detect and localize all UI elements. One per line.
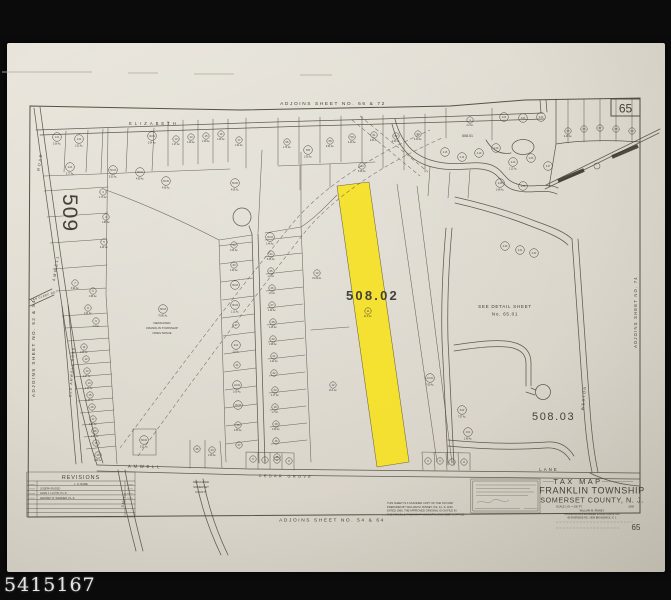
adjoins-right-label: ADJOINS SHEET NO. 74 (633, 276, 638, 348)
lot-number: 21 (273, 354, 276, 358)
lot-acreage: 1.12 Ac. (85, 387, 94, 390)
street-smith-label: SMITH (120, 492, 127, 508)
lot-marker: 2.19 (475, 149, 484, 158)
lot-number: 17 (92, 417, 95, 421)
tax-map-svg: 1.012.06 Ac.1.021.52 Ac.2.013.77 Ac.50.0… (0, 0, 671, 600)
lot-marker: 8 (461, 459, 467, 465)
lot-marker: 3.011.99 Ac. (464, 428, 473, 441)
lot-marker: 68.022.02 Ac. (140, 436, 149, 449)
street-elizabeth-label: ELIZABETH (129, 121, 179, 126)
lot-number: 28 (272, 320, 275, 324)
lot-number: 34 (233, 263, 236, 267)
lot-number: 9.01 (234, 345, 239, 347)
open-space-note-1: DEDICATED (153, 321, 171, 325)
lot-acreage: 1.99 Ac. (464, 437, 473, 440)
lot-number: 11 (367, 309, 370, 313)
lot-acreage: 1.0 Ac. (268, 292, 275, 295)
lot-acreage: 1.46 Ac. (266, 242, 275, 245)
adjoins-top-label: ADJOINS SHEET NO. 66 & 72 (280, 101, 386, 107)
lot-marker: 501.04 Ac. (230, 242, 239, 252)
lot-marker: 2.32 (530, 249, 539, 258)
lot-acreage: 1.29 Ac. (202, 140, 211, 143)
revision-row-1: L. G. RAME (74, 482, 88, 486)
lot-acreage: 1.04 Ac. (230, 249, 239, 252)
lot-acreage: 0.46 Ac. (267, 258, 276, 261)
lot-number: 15 (89, 393, 92, 397)
lot-marker: 9.011.0 Ac. (232, 341, 241, 354)
lot-acreage: 1.7 Ac. (271, 411, 278, 414)
lot-number: 58 (329, 139, 332, 143)
street-cedar-grove-label: CEDAR GROVE (259, 474, 314, 479)
lot-acreage: 2.17 Ac. (271, 394, 280, 397)
lot-marker: 52.24 Ac. (100, 239, 109, 249)
revision-row-3: GLEN J. LLOYD, P.L.S. (40, 491, 67, 495)
lot-marker: 45 (194, 446, 200, 452)
lot-number: 47 (238, 443, 241, 447)
lot-number: 15 (205, 134, 208, 138)
lot-marker: 35.03 (231, 281, 240, 290)
lot-marker: 441.53 Ac. (208, 447, 217, 457)
lot-number: 14 (190, 135, 193, 139)
lot-number: 25 (270, 269, 273, 273)
lot-number: 27 (271, 303, 274, 307)
lot-marker: 2.27 (544, 162, 553, 171)
lot-number: 1.01 (55, 137, 60, 139)
title-year: 1966 (628, 505, 634, 509)
lot-number: 35.03 (232, 285, 238, 287)
lot-acreage: 7.00 Ac. (426, 383, 435, 386)
lot-acreage: 2.61 Ac. (370, 139, 379, 142)
lot-number: 2.15 (443, 152, 448, 154)
lot-number: 62 (395, 134, 398, 138)
lot-number: 24 (270, 252, 273, 256)
paper-faint-dashes (2, 72, 332, 75)
lot-number: 2.19 (477, 153, 482, 155)
lot-acreage: 2.63 Ac. (392, 140, 401, 143)
map-border (28, 98, 640, 517)
lot-number: 2.31 (518, 250, 523, 252)
lot-number: 66 (583, 127, 586, 131)
lot-acreage: 4.09 Ac. (231, 188, 240, 191)
lot-number: 30.01 (149, 136, 155, 138)
lot-number: 50.06 (232, 183, 238, 185)
lot-number: 12 (85, 357, 88, 361)
sheet-number-bottom-label: 65 (632, 523, 641, 532)
street-lane-label: LANE (539, 467, 558, 472)
lot-number: 2.28 (498, 183, 503, 185)
lot-number: 16 (220, 132, 223, 136)
lot-marker: 171.24 Ac. (235, 137, 244, 147)
lot-marker: 170.80 Ac. (89, 416, 98, 426)
adjoins-bottom-label: ADJOINS SHEET NO. 54 & 64 (279, 518, 385, 524)
lot-acreage: 1.32 Ac. (230, 269, 239, 272)
lot-number: 43.02 (234, 385, 240, 387)
lot-acreage: 4.99 Ac. (136, 177, 145, 180)
lot-number: 50.04 (137, 172, 143, 174)
lot-marker: 3.027.57 Ac. (458, 406, 467, 419)
lot-marker: 50.064.09 Ac. (231, 179, 240, 192)
lot-marker: 561.74 Ac. (283, 139, 292, 149)
lot-number: 2.04 (502, 117, 507, 119)
lot-marker: 643.08 Ac. (358, 163, 367, 173)
lot-acreage: 1.89 Ac. (102, 221, 111, 224)
lot-number: 2.03 (521, 118, 526, 120)
lot-number: 19 (95, 441, 98, 445)
lot-marker: 2.013.77 Ac. (66, 163, 75, 176)
lot-marker: 47 (236, 442, 242, 448)
lot-number: 61 (373, 133, 376, 137)
lot-acreage: 1.04 Ac. (84, 312, 93, 315)
lot-marker: 41.89 Ac. (102, 214, 111, 224)
lot-marker: 70.92 Ac. (71, 280, 80, 290)
certification-stamp-box (471, 479, 540, 513)
street-weston-label: WESTON (581, 385, 588, 410)
open-space-note-2: FRANKLIN TOWNSHIP (146, 326, 178, 330)
lot-acreage: 2.06 Ac. (53, 142, 62, 145)
lot-number: 11 (83, 345, 86, 349)
lot-acreage: 3.08 Ac. (358, 170, 367, 173)
lot-acreage: 1.73 Ac. (99, 196, 108, 199)
lot-marker: 2.231.12 Ac. (509, 158, 518, 171)
see-detail-line2: No. 65.01 (492, 312, 518, 317)
lot-marker: 2.25 (527, 154, 536, 163)
lot-marker: 592.40 Ac. (348, 134, 357, 144)
lot-marker: 50.035.53 Ac. (109, 166, 118, 179)
lot-marker: 1015.29 Ac. (312, 270, 322, 280)
lot-marker: 582.61 Ac. (326, 138, 335, 148)
lot-number: 37 (235, 323, 238, 327)
lot-marker: 12 (83, 356, 89, 362)
lot-number: 2.20 (494, 148, 499, 150)
lot-marker: 141.29 Ac. (187, 134, 196, 144)
scan-note-1: THIS SHEET IS A SCANNED COPY OF THE TAX … (387, 501, 454, 505)
lot-number: 18 (94, 429, 97, 433)
lot-acreage: 75.80 Ac. (158, 314, 168, 317)
lot-acreage: 2.40 Ac. (348, 141, 357, 144)
highlighted-parcel-508-02-lot-11 (337, 182, 409, 467)
county-note-1: DEDICATED (193, 480, 209, 484)
lot-number: 18 (275, 422, 278, 426)
lot-number: 65 (567, 129, 570, 133)
lot-acreage: 3.77 Ac. (66, 172, 75, 175)
lot-marker: 16 (89, 404, 95, 410)
lot-marker: 191.7 Ac. (271, 404, 278, 414)
lot-acreage: 15.29 Ac. (312, 277, 322, 280)
lot-marker: 5 (250, 456, 256, 462)
lot-acreage: 7.57 Ac. (458, 415, 467, 418)
lot-marker: 1216.4 Ac. (329, 382, 338, 392)
lot-number: 69 (631, 129, 634, 133)
lot-marker: 111.06 Ac. (80, 344, 89, 354)
lot-marker: 92.3 Ac. (92, 318, 99, 328)
lot-marker: 50.054.08 Ac. (162, 177, 171, 190)
lot-acreage: 1.24 Ac. (94, 459, 103, 462)
railroad-symbol (545, 129, 660, 189)
lot-number: 3.01 (466, 432, 471, 434)
block-509-label: 509 (58, 194, 81, 232)
street-old-amwell-label: OLD AMWELL ROAD (68, 347, 76, 398)
lot-acreage: 5.53 Ac. (109, 175, 118, 178)
lot-number: 6 (439, 459, 441, 463)
lot-number: 45 (196, 447, 199, 451)
street-amwell-bottom-label: AMWELL (128, 464, 162, 470)
lot-number: 26 (271, 286, 274, 290)
lot-number: 46 (237, 423, 240, 427)
lot-number: 8 (288, 459, 290, 463)
lot-number: 10 (316, 271, 319, 275)
lot-acreage: 2.02 Ac. (140, 445, 149, 448)
lot-acreage: 1.00 Ac. (272, 428, 281, 431)
signature-squiggle (477, 499, 509, 503)
lot-marker: 1.021.52 Ac. (75, 135, 84, 148)
lot-acreage: 2.04 Ac. (148, 141, 157, 144)
lot-number: 22 (273, 371, 276, 375)
lot-number: 63 (417, 132, 420, 136)
lot-marker: 2.281.08 Ac. (496, 179, 505, 192)
lot-acreage: 1.24 Ac. (235, 144, 244, 147)
lot-number: 1.02 (77, 139, 82, 141)
lot-acreage: 1.22 Ac. (270, 360, 279, 363)
lot-marker: 6 (437, 458, 443, 464)
lot-acreage: 1.06 Ac. (80, 351, 89, 354)
lot-number: 2.32 (532, 253, 537, 255)
lot-number: 36.03 (232, 305, 238, 307)
lot-number: 2.14 (460, 157, 465, 159)
lot-number: 10.02 (427, 378, 433, 380)
lot-marker: 2.02 (537, 113, 546, 122)
lot-marker: 161.29 Ac. (217, 131, 226, 141)
lot-marker: 30.012.04 Ac. (148, 132, 157, 145)
lot-number: 8 (463, 460, 465, 464)
lot-acreage: 1.29 Ac. (217, 138, 226, 141)
lot-acreage: 21.9 Ac. (364, 315, 373, 318)
block-508-02-label: 508.02 (346, 288, 399, 303)
lot-acreage: 1.09 Ac. (233, 390, 242, 393)
lot-marker: 251.0 Ac. (267, 268, 274, 278)
lot-number: 3.02 (460, 410, 465, 412)
lot-acreage: 1.0 Ac. (267, 275, 274, 278)
lot-number: 29 (272, 337, 275, 341)
lot-marker: 12.2 Ac. (466, 117, 473, 127)
lot-acreage: 1.53 Ac. (208, 454, 217, 457)
scan-note-3: DATED 1966. THE APPROVED ORIGINAL IS ON … (387, 509, 456, 513)
lot-number: 50.03 (110, 170, 116, 172)
lot-marker: 151.29 Ac. (202, 133, 211, 143)
lot-number: 2.23 (511, 162, 516, 164)
revision-date-rows (556, 522, 634, 528)
revisions-title: REVISIONS (62, 475, 100, 481)
lot-marker: 622.63 Ac. (392, 133, 401, 143)
lot-number: 13 (175, 137, 178, 141)
lot-marker: 81.04 Ac. (84, 305, 93, 315)
open-space-note-3: OPEN SPACE (152, 331, 171, 335)
lot-acreage: 1.09 Ac. (304, 155, 313, 158)
lot-acreage: 1.30 Ac. (86, 399, 95, 402)
lot-number: 16 (275, 439, 278, 443)
street-van-cleef-label: VAN CLEEF RD. (30, 290, 58, 302)
lot-number: 67 (599, 126, 602, 130)
lot-number: 7 (451, 460, 453, 464)
lot-marker: 151.30 Ac. (86, 392, 95, 402)
lot-acreage: 4.08 Ac. (162, 186, 171, 189)
lot-marker: 2.30 (501, 242, 510, 251)
lot-marker: 131.27 Ac. (172, 136, 181, 146)
county-note-2: SOMERSET (193, 485, 209, 489)
title-scale: SCALE 1 IN. = 200 FT. (556, 505, 583, 509)
lot-number: 6 (92, 289, 94, 293)
lot-marker: 41 (234, 362, 240, 368)
lot-number: 5 (427, 459, 429, 463)
lot-number: 3 (102, 190, 104, 194)
lot-marker: 61.98 Ac. (89, 288, 98, 298)
lot-marker: 2.03 (519, 114, 528, 123)
street-amwell-road-lower-label: AMWELL (52, 254, 60, 281)
lot-number: 2.25 (529, 158, 534, 160)
lot-acreage: 1.74 Ac. (283, 146, 292, 149)
lot-acreage: 1.29 Ac. (187, 141, 196, 144)
lot-acreage: 1.12 Ac. (231, 310, 240, 313)
lot-number: 2.30 (503, 246, 508, 248)
lot-acreage: 1.0 Ac. (232, 350, 239, 353)
lot-number: 5 (252, 457, 254, 461)
lot-acreage: 1.27 Ac. (172, 143, 181, 146)
block-508-01-label: 508.01 (462, 134, 473, 138)
lot-number: 9 (95, 319, 97, 323)
lot-acreage: 0.92 Ac. (71, 287, 80, 290)
lot-number: 41 (236, 363, 239, 367)
lot-acreage: 1.68 Ac. (269, 343, 278, 346)
lot-number: 2.01 (68, 167, 73, 169)
scan-note-4: THE FRANKLIN TOWNSHIP MUNICIPAL ENGINEER… (387, 512, 465, 516)
lot-marker: 36.031.12 Ac. (231, 301, 240, 314)
lot-acreage: 1.98 Ac. (89, 295, 98, 298)
lot-number: 12 (332, 383, 335, 387)
lot-number: 17 (238, 138, 241, 142)
lot-acreage: 1.12 Ac. (509, 167, 518, 170)
lot-number: 13 (86, 369, 89, 373)
lot-acreage: 2.40 Ac. (564, 135, 573, 138)
lot-marker: 10.027.00 Ac. (426, 374, 435, 387)
lot-acreage: 1.46 Ac. (269, 326, 278, 329)
title-surveyor-3: 45 RIVERSIDE RD., NEW BRUNSWICK, N. J. (567, 516, 617, 519)
lot-number: 68.02 (141, 440, 147, 442)
lot-number: 2.02 (539, 117, 544, 119)
lot-marker: 43.021.09 Ac. (233, 381, 242, 394)
lot-number: 30.03 (267, 237, 273, 239)
block-508-03-label: 508.03 (532, 411, 575, 423)
lot-marker: 181.14 Ac. (91, 428, 100, 438)
lot-number: 7 (74, 281, 76, 285)
lot-number: 68.03 (160, 309, 166, 311)
lot-marker: 261.0 Ac. (268, 285, 275, 295)
lot-marker: 2.14 (458, 153, 467, 162)
sheet-number-box-label: 65 (619, 102, 633, 116)
lot-number: 23 (274, 388, 277, 392)
lot-number: 8 (87, 306, 89, 310)
lot-marker: 461.53 Ac. (234, 422, 243, 432)
revision-row-2: JOSEPH RUSSO (40, 487, 60, 491)
lot-number: 57B (306, 150, 311, 152)
lot-acreage: 1.32 Ac. (268, 309, 277, 312)
lot-number: 50.05 (163, 181, 169, 183)
lot-number: 2.27 (546, 166, 551, 168)
lot-marker: 7 (449, 459, 455, 465)
lot-acreage: 1.52 Ac. (75, 144, 84, 147)
lot-marker: 141.12 Ac. (85, 380, 94, 390)
lot-number: 5 (103, 240, 105, 244)
lot-number: 50 (233, 243, 236, 247)
lot-number: 59 (351, 135, 354, 139)
tax-map-photo-screenshot: 1.012.06 Ac.1.021.52 Ac.2.013.77 Ac.50.0… (0, 0, 671, 600)
lot-marker: 612.61 Ac. (370, 132, 379, 142)
lot-acreage: 2.2 Ac. (466, 124, 473, 127)
lot-acreage: 0.80 Ac. (89, 423, 98, 426)
lot-number: 56 (286, 140, 289, 144)
lot-acreage: 1.14 Ac. (91, 435, 100, 438)
lot-marker: 2.31 (516, 246, 525, 255)
watermark-number: 5415167 (4, 574, 96, 596)
revision-row-4: JEFFREY R. WARNER, P.L.S. (40, 496, 75, 500)
lot-marker: 50.044.99 Ac. (136, 168, 145, 181)
lot-acreage: 2.24 Ac. (100, 246, 109, 249)
title-county: SOMERSET COUNTY, N. J. (540, 496, 644, 505)
lot-acreage: 2.3 Ac. (92, 325, 99, 328)
lot-marker: 632.40 Ac. (414, 131, 423, 141)
lot-number: 44 (211, 448, 214, 452)
lot-acreage: 16.4 Ac. (329, 389, 338, 392)
lot-marker: 68.0375.80 Ac. (158, 305, 168, 318)
lot-acreage: 2.40 Ac. (414, 138, 423, 141)
lot-number: 2.26 (521, 186, 526, 188)
lot-number: 14 (88, 381, 91, 385)
lot-number: 68 (615, 127, 618, 131)
lot-acreage: 1.53 Ac. (234, 429, 243, 432)
lot-marker: 2.15 (441, 148, 450, 157)
lot-marker: 131.27 Ac. (83, 368, 92, 378)
lot-marker: 57B1.09 Ac. (304, 146, 313, 159)
lot-marker: 341.32 Ac. (230, 262, 239, 272)
lot-number: 45.03 (235, 405, 241, 407)
lot-marker: 8 (286, 458, 292, 464)
lot-number: 64 (361, 164, 364, 168)
lot-acreage: 1.27 Ac. (83, 375, 92, 378)
lot-number: 6 (264, 458, 266, 462)
lot-number: 20 (97, 453, 100, 457)
lot-marker: 45.03 (234, 401, 243, 410)
lot-number: 16 (91, 405, 94, 409)
adjoins-left-label: ADJOINS SHEET NO. 52 & 54 (31, 299, 36, 397)
lot-acreage: 2.61 Ac. (326, 145, 335, 148)
scan-note-2: PREPARED BY WILLIAM M. RINNEY, P.E. & L.… (387, 505, 453, 509)
lot-number: 19 (274, 405, 277, 409)
county-note-3: COUNTY (195, 490, 207, 494)
title-township: FRANKLIN TOWNSHIP (539, 486, 644, 496)
title-surveyor-1: WILLIAM M. RINNEY (580, 509, 605, 513)
see-detail-line1: SEE DETAIL SHEET (478, 304, 532, 309)
lot-marker: 5 (425, 458, 431, 464)
lot-acreage: 1.08 Ac. (496, 188, 505, 191)
